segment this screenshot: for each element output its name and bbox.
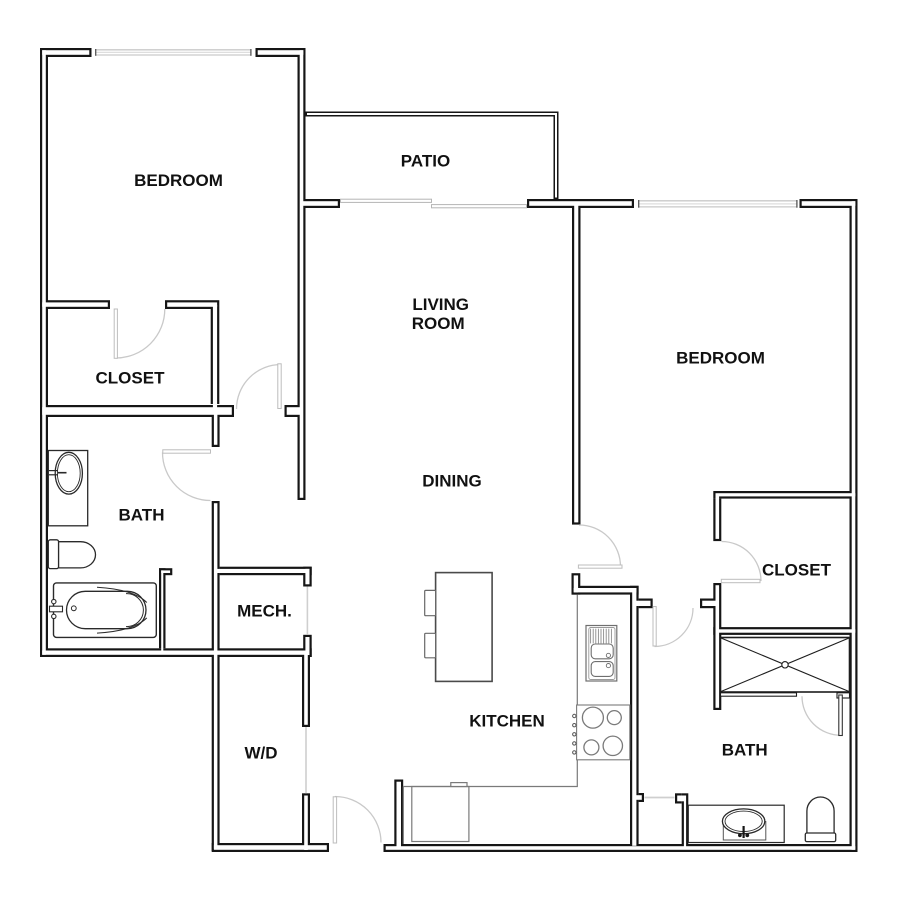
svg-text:CLOSET: CLOSET [762, 561, 832, 580]
svg-text:MECH.: MECH. [237, 602, 292, 621]
svg-text:KITCHEN: KITCHEN [469, 712, 545, 731]
svg-text:BEDROOM: BEDROOM [134, 171, 223, 190]
svg-text:ROOM: ROOM [412, 314, 465, 333]
svg-text:PATIO: PATIO [401, 152, 450, 171]
svg-text:BEDROOM: BEDROOM [676, 349, 765, 368]
svg-text:DINING: DINING [422, 472, 482, 491]
svg-text:BATH: BATH [119, 506, 165, 525]
svg-text:CLOSET: CLOSET [96, 369, 166, 388]
svg-text:LIVING: LIVING [412, 295, 469, 314]
svg-text:BATH: BATH [722, 741, 768, 760]
svg-text:W/D: W/D [244, 744, 277, 763]
